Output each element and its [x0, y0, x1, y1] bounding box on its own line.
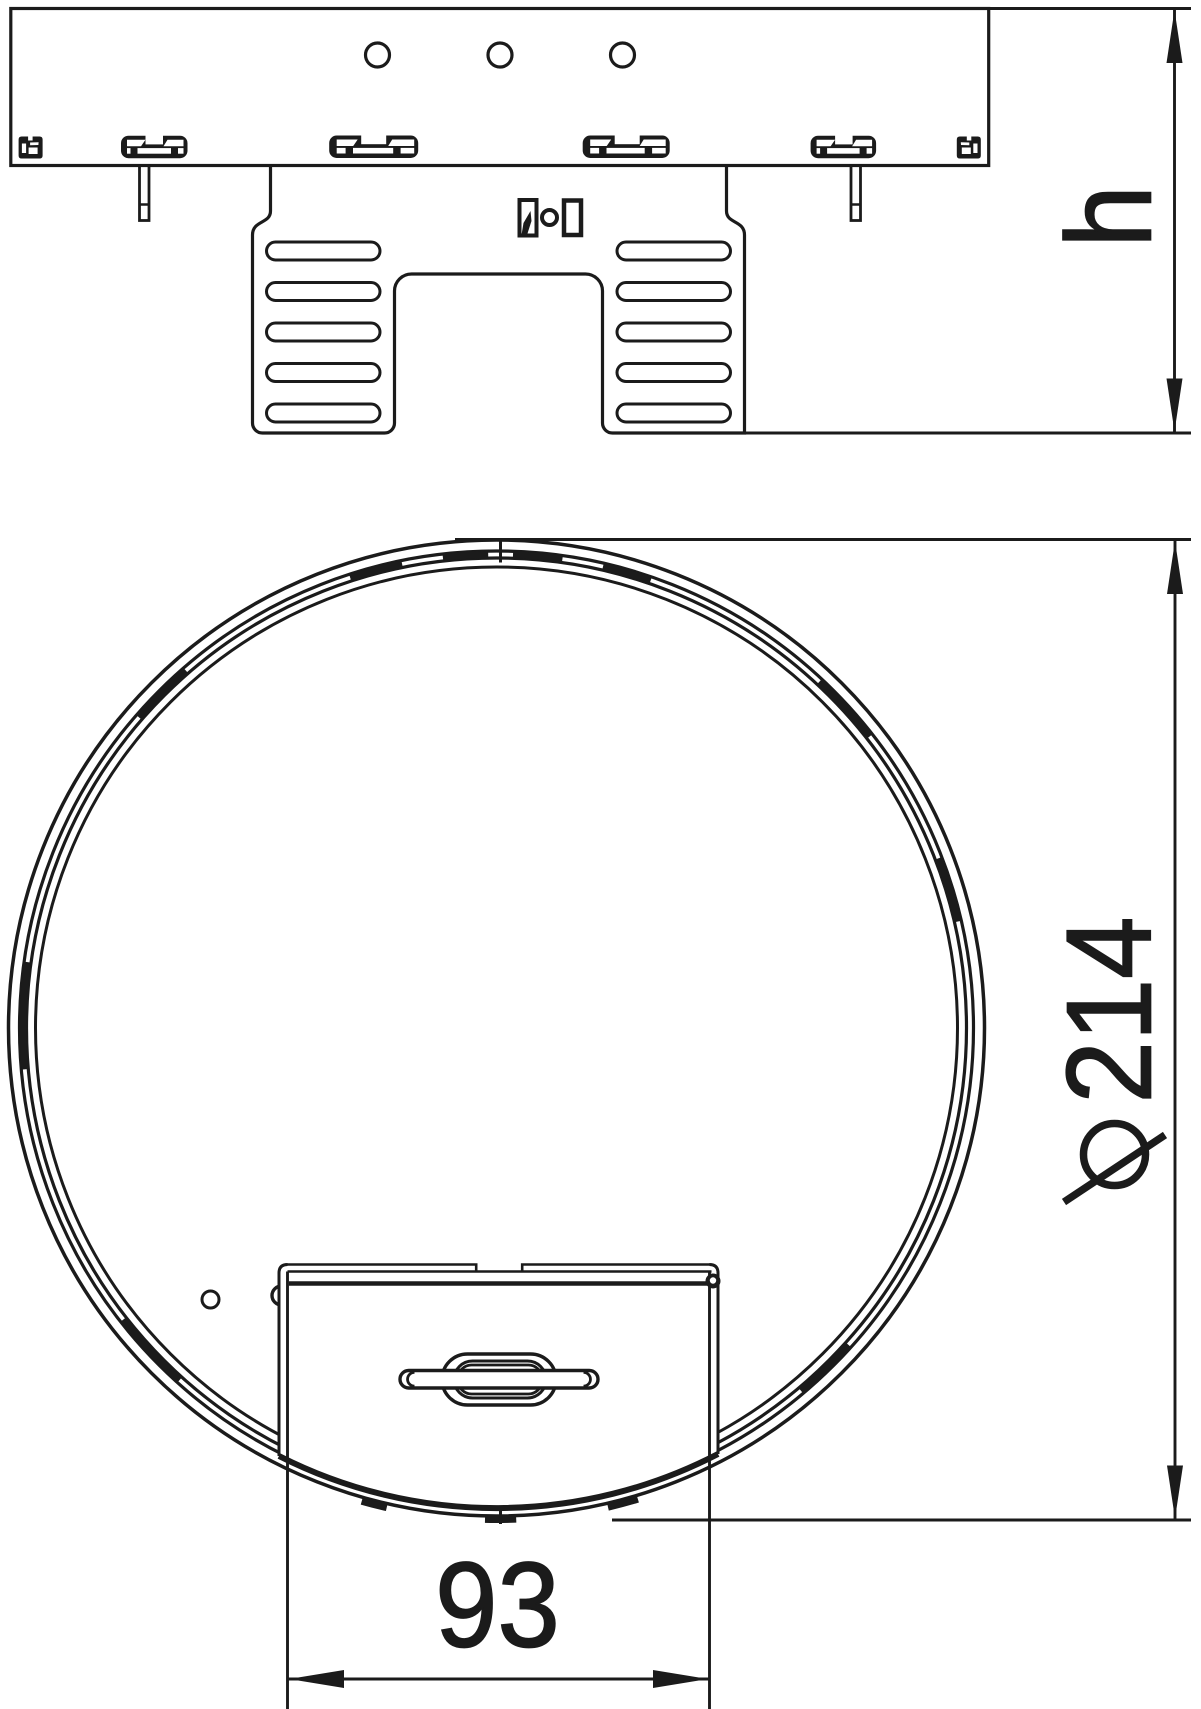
svg-text:h: h: [1042, 185, 1177, 247]
svg-text:214: 214: [1042, 917, 1177, 1104]
svg-text:93: 93: [435, 1538, 560, 1673]
